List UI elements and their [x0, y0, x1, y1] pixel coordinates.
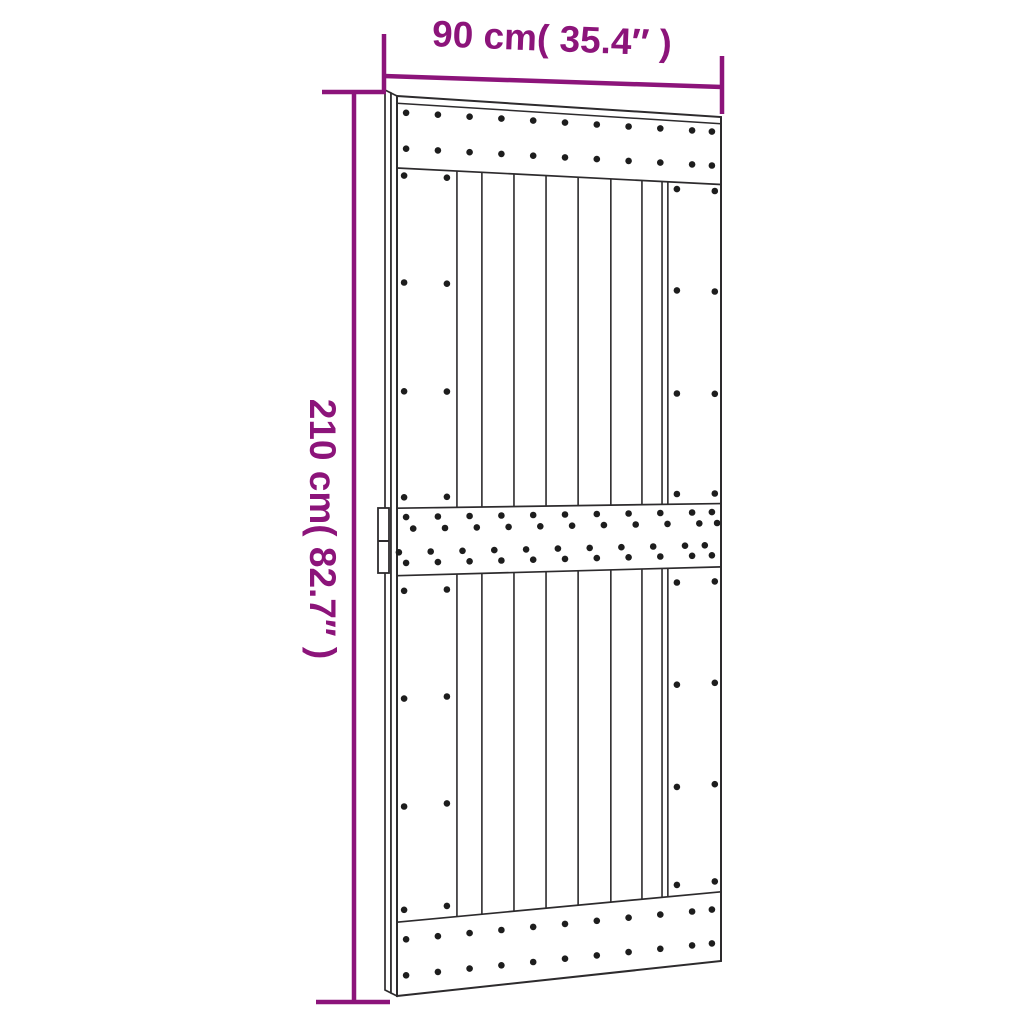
screw-dot [491, 547, 498, 554]
screw-dot [632, 521, 639, 528]
screw-dot [650, 543, 657, 550]
screw-dot [435, 969, 442, 976]
screw-dot [403, 560, 410, 567]
screw-dot [657, 159, 664, 166]
screw-dot [586, 545, 593, 552]
screw-dot [712, 578, 719, 585]
screw-dot [403, 110, 410, 117]
screw-dot [403, 936, 410, 943]
screw-dot [474, 524, 481, 531]
screw-dot [562, 119, 569, 126]
screw-dot [562, 556, 569, 563]
screw-dot [401, 494, 408, 501]
screw-dot [712, 391, 719, 398]
screw-dot [505, 524, 512, 531]
screw-dot [530, 556, 537, 563]
screw-dot [674, 681, 681, 688]
screw-dot [657, 125, 664, 132]
screw-dot [594, 121, 601, 128]
screw-dot [403, 972, 410, 979]
screw-dot [410, 525, 417, 532]
screw-dot [712, 878, 719, 885]
screw-dot [709, 162, 716, 169]
screw-dot [625, 554, 632, 561]
screw-dot [562, 154, 569, 161]
screw-dot [709, 552, 716, 559]
door-diagram [0, 0, 1024, 1024]
screw-dot [562, 921, 569, 928]
screw-dot [435, 147, 442, 154]
screw-dot [401, 695, 408, 702]
screw-dot [444, 693, 451, 700]
screw-dot [498, 151, 505, 158]
screw-dot [530, 924, 537, 931]
screw-dot [466, 513, 473, 520]
screw-dot [401, 588, 408, 595]
screw-dot [444, 280, 451, 287]
screw-dot [594, 511, 601, 518]
screw-dot [657, 510, 664, 517]
screw-dot [530, 117, 537, 124]
door-drawing [378, 90, 721, 996]
screw-dot [530, 512, 537, 519]
screw-dot [625, 510, 632, 517]
screw-dot [709, 509, 716, 516]
screw-dot [625, 914, 632, 921]
screw-dot [689, 161, 696, 168]
screw-dot [403, 145, 410, 152]
screw-dot [625, 158, 632, 165]
screw-dot [401, 279, 408, 286]
screw-dot [696, 520, 703, 527]
screw-dot [555, 545, 562, 552]
screw-dot [709, 940, 716, 947]
screw-dot [562, 511, 569, 518]
screw-dot [498, 557, 505, 564]
width-dim-line [384, 76, 722, 87]
screw-dot [674, 186, 681, 193]
screw-dot [618, 544, 625, 551]
screw-dot [674, 491, 681, 498]
screw-dot [466, 558, 473, 565]
screw-dot [562, 955, 569, 962]
screw-dot [657, 946, 664, 953]
screw-dot [444, 903, 451, 910]
screw-dot [569, 522, 576, 529]
screw-dot [523, 546, 530, 553]
screw-dot [712, 490, 719, 497]
screw-dot [444, 388, 451, 395]
screw-dot [689, 942, 696, 949]
screw-dot [396, 549, 403, 556]
screw-dot [401, 172, 408, 179]
screw-dot [537, 523, 544, 530]
screw-dot [674, 579, 681, 586]
screw-dot [444, 174, 451, 181]
screw-dot [689, 509, 696, 516]
screw-dot [459, 548, 466, 555]
screw-dot [601, 522, 608, 529]
screw-dot [444, 800, 451, 807]
screw-dot [466, 930, 473, 937]
screw-dot [657, 911, 664, 918]
screw-dot [689, 127, 696, 134]
screw-dot [401, 803, 408, 810]
screw-dot [594, 156, 601, 163]
screw-dot [466, 149, 473, 156]
screw-dot [498, 962, 505, 969]
screw-dot [657, 553, 664, 560]
screw-dot [498, 512, 505, 519]
screw-dot [712, 781, 719, 788]
screw-dot [498, 115, 505, 122]
screw-dot [674, 390, 681, 397]
screw-dot [530, 152, 537, 159]
screw-dot [689, 908, 696, 915]
screw-dot [594, 918, 601, 925]
screw-dot [530, 959, 537, 966]
screw-dot [625, 123, 632, 130]
screw-dot [712, 680, 719, 687]
screw-dot [401, 907, 408, 914]
screw-dot [674, 882, 681, 889]
screw-dot [682, 542, 689, 549]
screw-dot [498, 927, 505, 934]
screw-dot [702, 542, 709, 549]
screw-dot [712, 188, 719, 195]
screw-dot [689, 553, 696, 560]
screw-dot [401, 388, 408, 395]
screw-dot [709, 128, 716, 135]
screw-dot [664, 521, 671, 528]
screw-dot [427, 548, 434, 555]
screw-dot [674, 784, 681, 791]
diagram-canvas: 90 cm( 35.4″ ) 210 cm( 82.7″ ) [0, 0, 1024, 1024]
screw-dot [466, 113, 473, 120]
screw-dot [625, 949, 632, 956]
screw-dot [442, 525, 449, 532]
screw-dot [435, 513, 442, 520]
screw-dot [594, 555, 601, 562]
screw-dot [435, 559, 442, 566]
screw-dot [403, 514, 410, 521]
screw-dot [435, 111, 442, 118]
screw-dot [712, 288, 719, 295]
screw-dot [674, 287, 681, 294]
height-dimension-label: 210 cm( 82.7″ ) [300, 319, 344, 739]
screw-dot [435, 933, 442, 940]
screw-dot [444, 494, 451, 501]
screw-dot [594, 952, 601, 959]
screw-dot [466, 965, 473, 972]
screw-dot [714, 520, 721, 527]
screw-dot [709, 906, 716, 913]
screw-dot [444, 586, 451, 593]
